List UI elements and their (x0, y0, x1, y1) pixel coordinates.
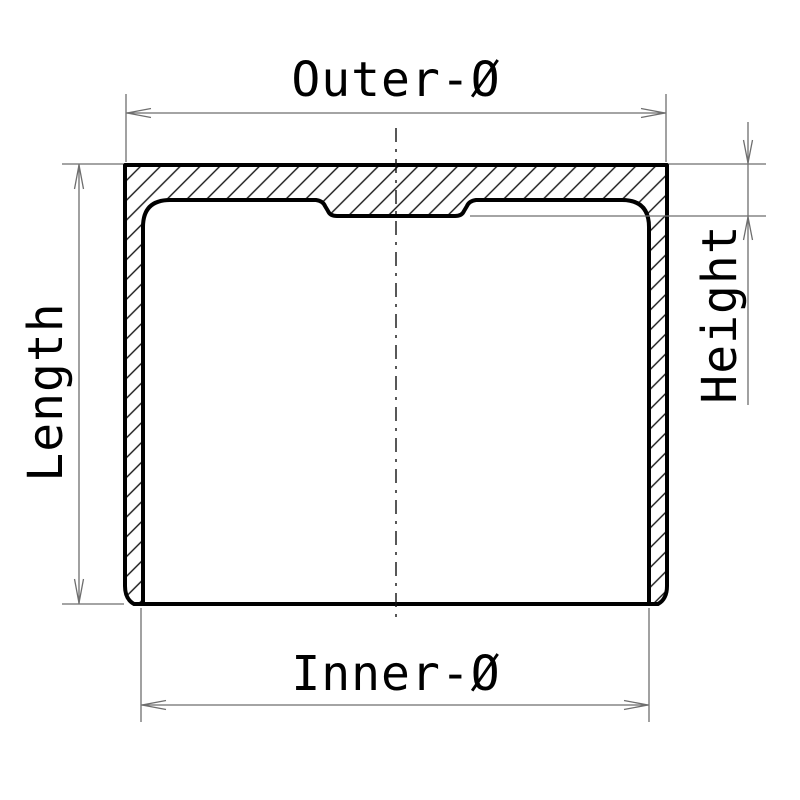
technical-drawing-page: Outer-Ø Inner-Ø Length (0, 0, 800, 800)
outer-diameter-label: Outer-Ø (291, 52, 500, 108)
tappet-cross-section-drawing: Outer-Ø Inner-Ø Length (0, 0, 800, 800)
length-label: Length (18, 302, 74, 481)
height-label: Height (692, 224, 748, 403)
inner-diameter-label: Inner-Ø (291, 646, 500, 702)
